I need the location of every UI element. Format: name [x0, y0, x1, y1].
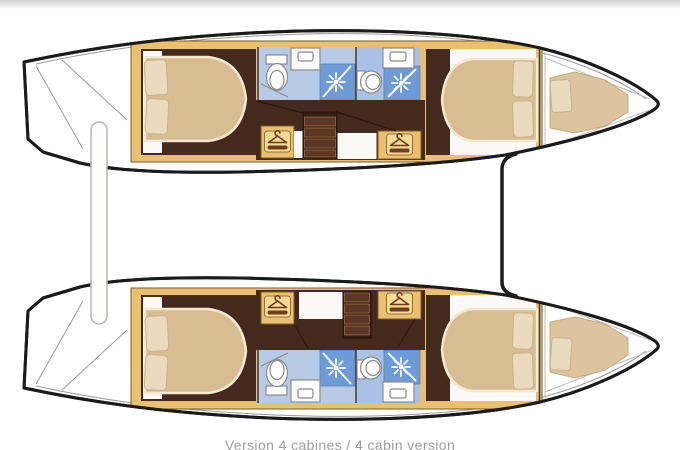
caption: Version 4 cabines / 4 cabin version — [225, 437, 455, 450]
forward-beam-edge — [502, 154, 516, 296]
aft-crossbeam-bar — [91, 122, 107, 324]
companionway-steps — [343, 292, 371, 338]
floor-plan-page: Version 4 cabines / 4 cabin version — [0, 0, 680, 450]
floor-plan-canvas — [0, 0, 680, 450]
companionway-steps — [303, 112, 337, 158]
